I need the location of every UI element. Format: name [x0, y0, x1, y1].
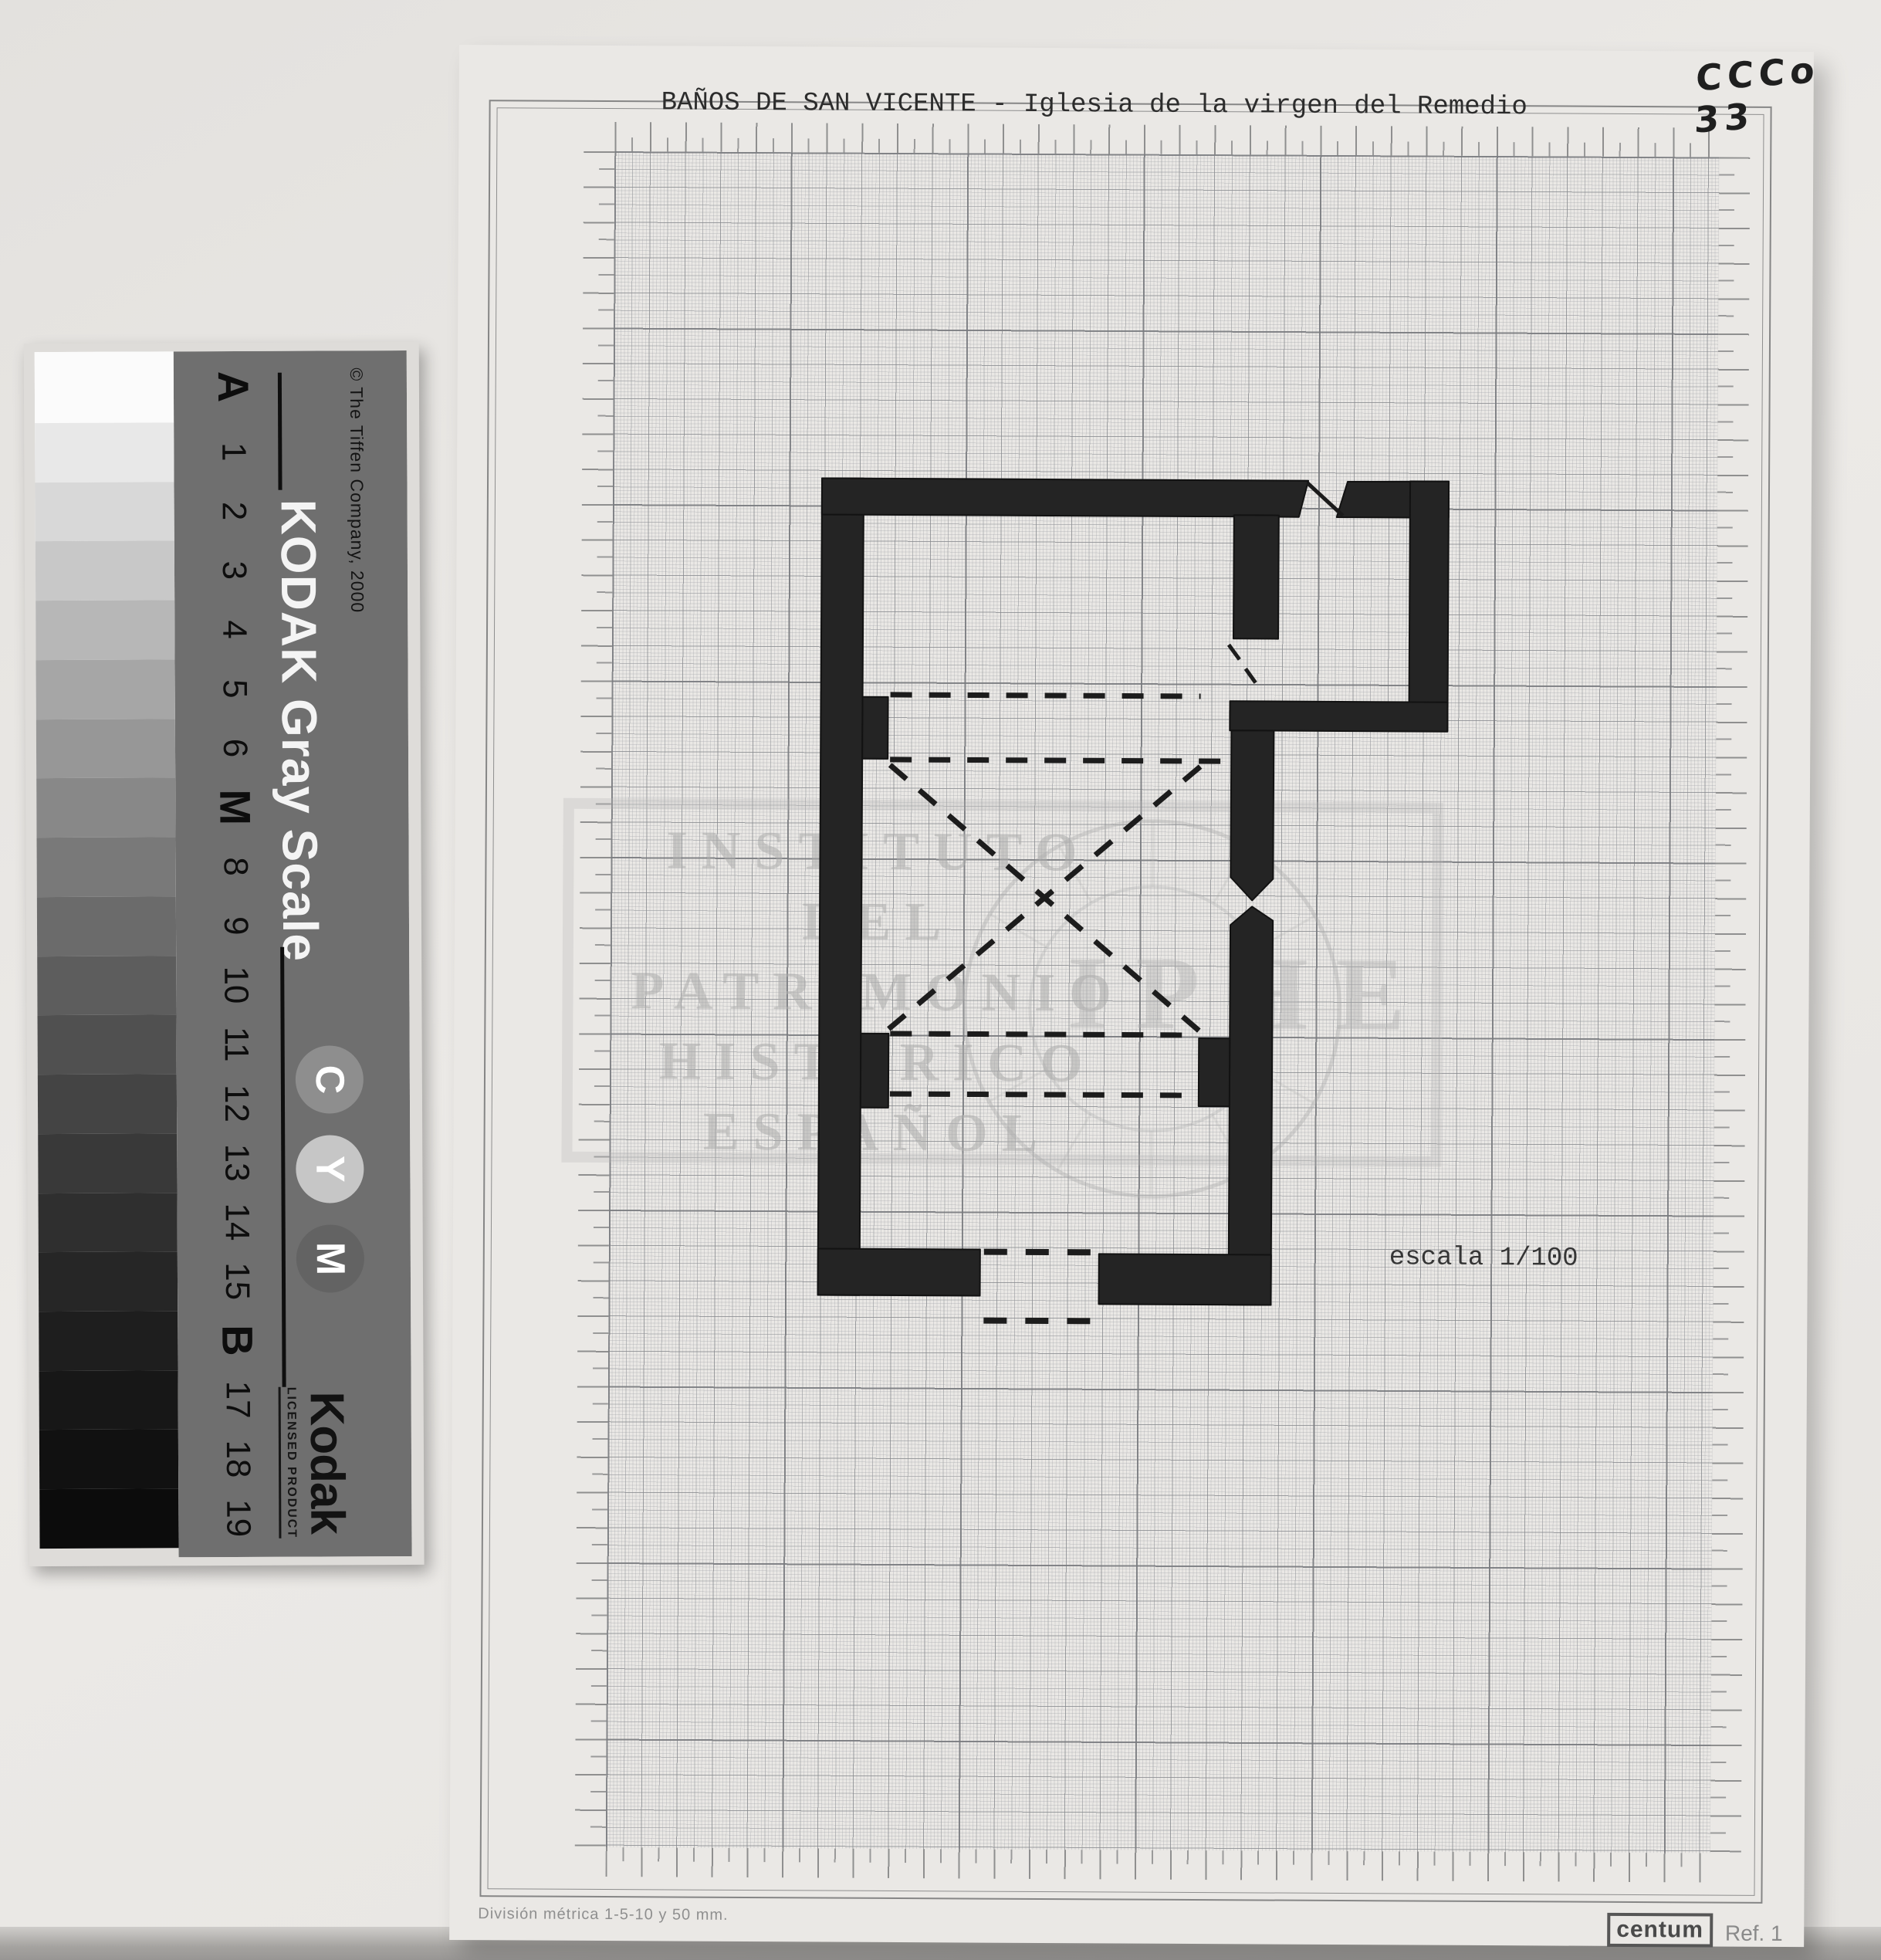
drawing-sheet: INSTITUTODELPATRIMONIOHISTÓRICOESPAÑOL I…: [449, 45, 1814, 1947]
gray-step-patch: [36, 837, 175, 897]
gray-step-labels: A123456M89101112131415B171819: [203, 351, 264, 1557]
gray-step-patch: [35, 422, 174, 482]
gray-step-patch: [39, 1430, 178, 1490]
reference-label: Ref. 1: [1725, 1921, 1783, 1948]
card-rule-line-left: [278, 373, 282, 490]
gray-step-label: 19: [218, 1484, 257, 1553]
kodak-logo-block: Kodak LICENSED PRODUCT: [279, 1386, 355, 1539]
pilaster-left-upper: [862, 697, 888, 759]
arch-tick-2: [1246, 669, 1256, 682]
card-brand-title: KODAK Gray Scale: [270, 499, 330, 962]
kodak-logo: Kodak: [299, 1386, 355, 1539]
arch-line-4: [890, 1094, 1187, 1095]
wall-left: [818, 478, 864, 1295]
vault-diagonal-2: [888, 765, 1200, 1031]
scanned-photo: © The Tiffen Company, 2000 KODAK Gray Sc…: [0, 0, 1881, 1960]
vault-dashed-lines: [887, 643, 1256, 1322]
gray-step-patch: [35, 482, 174, 542]
pilaster-left-lower: [861, 1034, 889, 1108]
cmy-circle-y: Y: [296, 1135, 364, 1203]
door-opening-line: [1308, 483, 1343, 516]
gray-step-label: A: [208, 352, 259, 421]
metric-division-label: División métrica 1-5-10 y 50 mm.: [478, 1905, 728, 1924]
gray-step-patch: [39, 1252, 178, 1312]
arch-line-2: [890, 760, 1223, 761]
gray-scale-card: © The Tiffen Company, 2000 KODAK Gray Sc…: [174, 350, 412, 1557]
gray-scale-card-face: © The Tiffen Company, 2000 KODAK Gray Sc…: [174, 350, 412, 1557]
manufacturer-row: centum Ref. 1: [1607, 1913, 1783, 1948]
plan-walls: [817, 478, 1449, 1305]
cmy-circle-m: M: [296, 1224, 364, 1292]
gray-step-patch: [36, 601, 174, 661]
kodak-gray-scale-strip: © The Tiffen Company, 2000 KODAK Gray Sc…: [0, 0, 466, 1660]
gray-step-patch: [39, 1370, 178, 1430]
gray-step-patch: [36, 659, 174, 719]
gray-step-patch: [37, 896, 176, 956]
entrance-dashed-bottom: [983, 1321, 1095, 1322]
scale-label: escala 1/100: [1389, 1243, 1578, 1273]
wall-right-upper: [1230, 730, 1274, 900]
cmy-circle-c: C: [296, 1045, 364, 1113]
gray-step-patch: [38, 1074, 177, 1134]
gray-step-patch: [39, 1193, 178, 1253]
wall-top-left-segment: [822, 478, 1308, 516]
floor-plan: [449, 45, 1814, 1947]
gray-step-patch: [38, 1015, 177, 1075]
wall-chancel-divider: [1233, 515, 1279, 638]
card-copyright: © The Tiffen Company, 2000: [346, 367, 367, 613]
gray-step-patch: [39, 1489, 178, 1549]
cmy-circles: CYM: [294, 1045, 364, 1308]
entrance-dashed-top: [984, 1252, 1096, 1253]
handwritten-code: CCCo 33: [1693, 44, 1881, 140]
pilaster-right-lower: [1199, 1038, 1230, 1106]
gray-step-patch: [36, 541, 174, 601]
gray-step-patch: [37, 956, 176, 1016]
arch-line-3: [890, 1034, 1197, 1035]
wall-bottom-left: [818, 1248, 980, 1295]
gray-step-patch: [36, 719, 175, 779]
wall-annex-right: [1409, 481, 1449, 730]
gray-step-patch: [38, 1133, 177, 1193]
gray-step-patch: [35, 351, 174, 423]
centum-logo: centum: [1607, 1913, 1713, 1948]
gray-step-column: [35, 351, 179, 1549]
gray-step-patch: [39, 1311, 178, 1371]
kodak-licensed-label: LICENSED PRODUCT: [279, 1387, 299, 1539]
card-rule-line-right: [280, 947, 286, 1387]
sheet-title: BAÑOS DE SAN VICENTE - Iglesia de la vir…: [661, 88, 1527, 122]
arch-line-1: [891, 695, 1201, 696]
wall-bottom-right: [1098, 1254, 1270, 1305]
wall-right-lower: [1228, 906, 1273, 1305]
arch-tick-1: [1229, 645, 1240, 659]
wall-annex-bottom: [1230, 701, 1447, 731]
gray-step-patch: [36, 778, 175, 838]
